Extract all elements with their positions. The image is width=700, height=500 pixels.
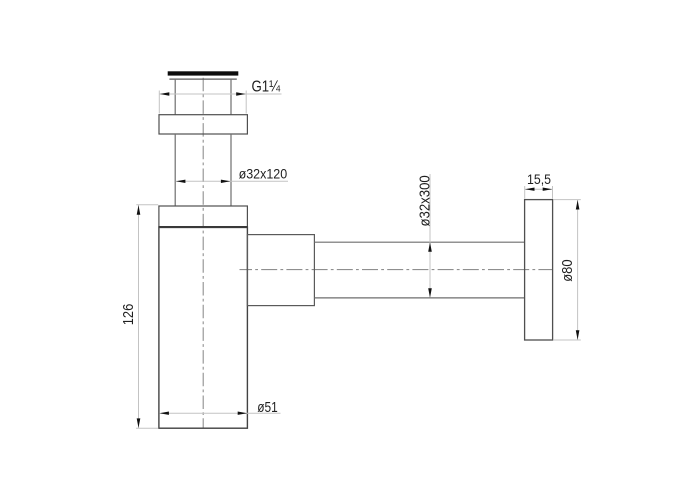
svg-text:ø32x300: ø32x300	[418, 175, 434, 226]
svg-text:ø32x120: ø32x120	[239, 166, 288, 182]
svg-text:ø80: ø80	[560, 259, 576, 281]
svg-text:15,5: 15,5	[527, 171, 551, 187]
svg-text:ø51: ø51	[257, 399, 278, 416]
svg-text:126: 126	[121, 304, 137, 326]
svg-text:G1¼: G1¼	[252, 79, 281, 96]
